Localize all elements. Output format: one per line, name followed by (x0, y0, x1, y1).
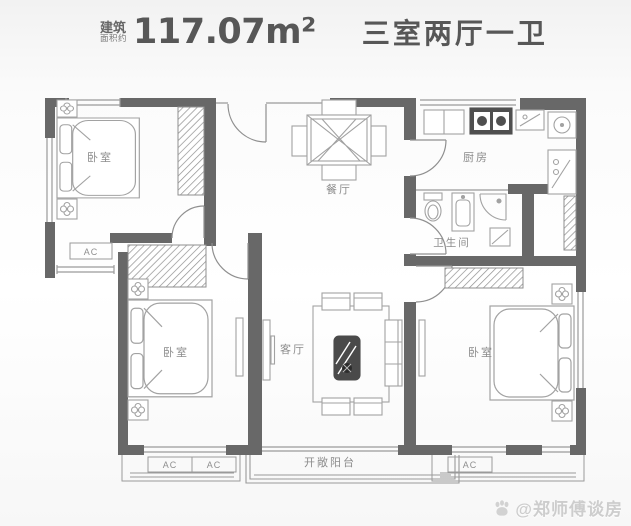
stove-symbol (470, 108, 512, 134)
balcony: 开敞阳台 (246, 455, 459, 483)
room-label: 卧室 (163, 345, 189, 359)
ac-ledge-left: AC AC (122, 455, 240, 481)
nightstand-symbol (128, 279, 148, 299)
nightstand-symbol (552, 284, 572, 304)
bedroom-bottom-left-door-arc (212, 243, 248, 279)
room-label: 卫生间 (433, 236, 471, 249)
shower-symbol (480, 194, 506, 220)
dresser-symbol (419, 320, 425, 376)
nightstand-symbol (128, 400, 148, 420)
sink-symbol (516, 110, 544, 130)
floorplan-page: 建筑 面积约 117.07m² 三室两厅一卫 (0, 0, 631, 526)
corner-sink-symbol (548, 112, 576, 138)
floor-drain-symbol (490, 228, 510, 246)
bedroom-bottom-right-room: 卧室 (419, 284, 574, 421)
entry-door-arc (228, 104, 266, 142)
nightstand-symbol (552, 401, 572, 421)
ac-label: AC (163, 460, 178, 470)
nightstand-symbol (57, 199, 77, 219)
room-label: 开敞阳台 (304, 455, 356, 469)
living-room: 客厅 (263, 293, 402, 415)
tv-symbol (263, 320, 275, 380)
room-label: 卧室 (87, 150, 113, 164)
room-label: 卧室 (468, 345, 494, 359)
bed-symbol (490, 306, 574, 400)
bathroom-sink-symbol (452, 193, 474, 231)
toilet-symbol (424, 193, 442, 221)
room-label: 餐厅 (326, 182, 352, 196)
counter-symbol (548, 150, 576, 194)
railing-symbol (564, 196, 576, 250)
dining-table-symbol (292, 100, 386, 180)
dresser-symbol (236, 318, 243, 376)
kitchen-room: 厨房 (424, 108, 576, 194)
bathroom-room: 卫生间 (424, 193, 510, 249)
room-label: 客厅 (280, 342, 306, 356)
nightstand-symbol (57, 100, 77, 117)
fridge-symbol (424, 110, 464, 134)
ac-label: AC (84, 247, 99, 257)
coffee-table-symbol (334, 336, 360, 380)
baidu-paw-icon (493, 499, 511, 517)
watermark-text: @郑师傅谈房 (515, 495, 623, 520)
floorplan-drawing: 卧室 AC 餐厅 (0, 0, 631, 526)
wardrobe-symbol (178, 107, 204, 195)
wardrobe-symbol (445, 268, 523, 288)
room-label: 厨房 (463, 151, 489, 164)
dining-room: 餐厅 (292, 100, 386, 196)
ac-label: AC (207, 460, 222, 470)
kitchen-door-arc (410, 140, 446, 176)
bedroom-top-left-door-arc (172, 206, 204, 238)
watermark: @郑师傅谈房 (493, 495, 623, 520)
bedroom-bottom-left-room: 卧室 (128, 279, 243, 420)
ac-label: AC (463, 460, 478, 470)
